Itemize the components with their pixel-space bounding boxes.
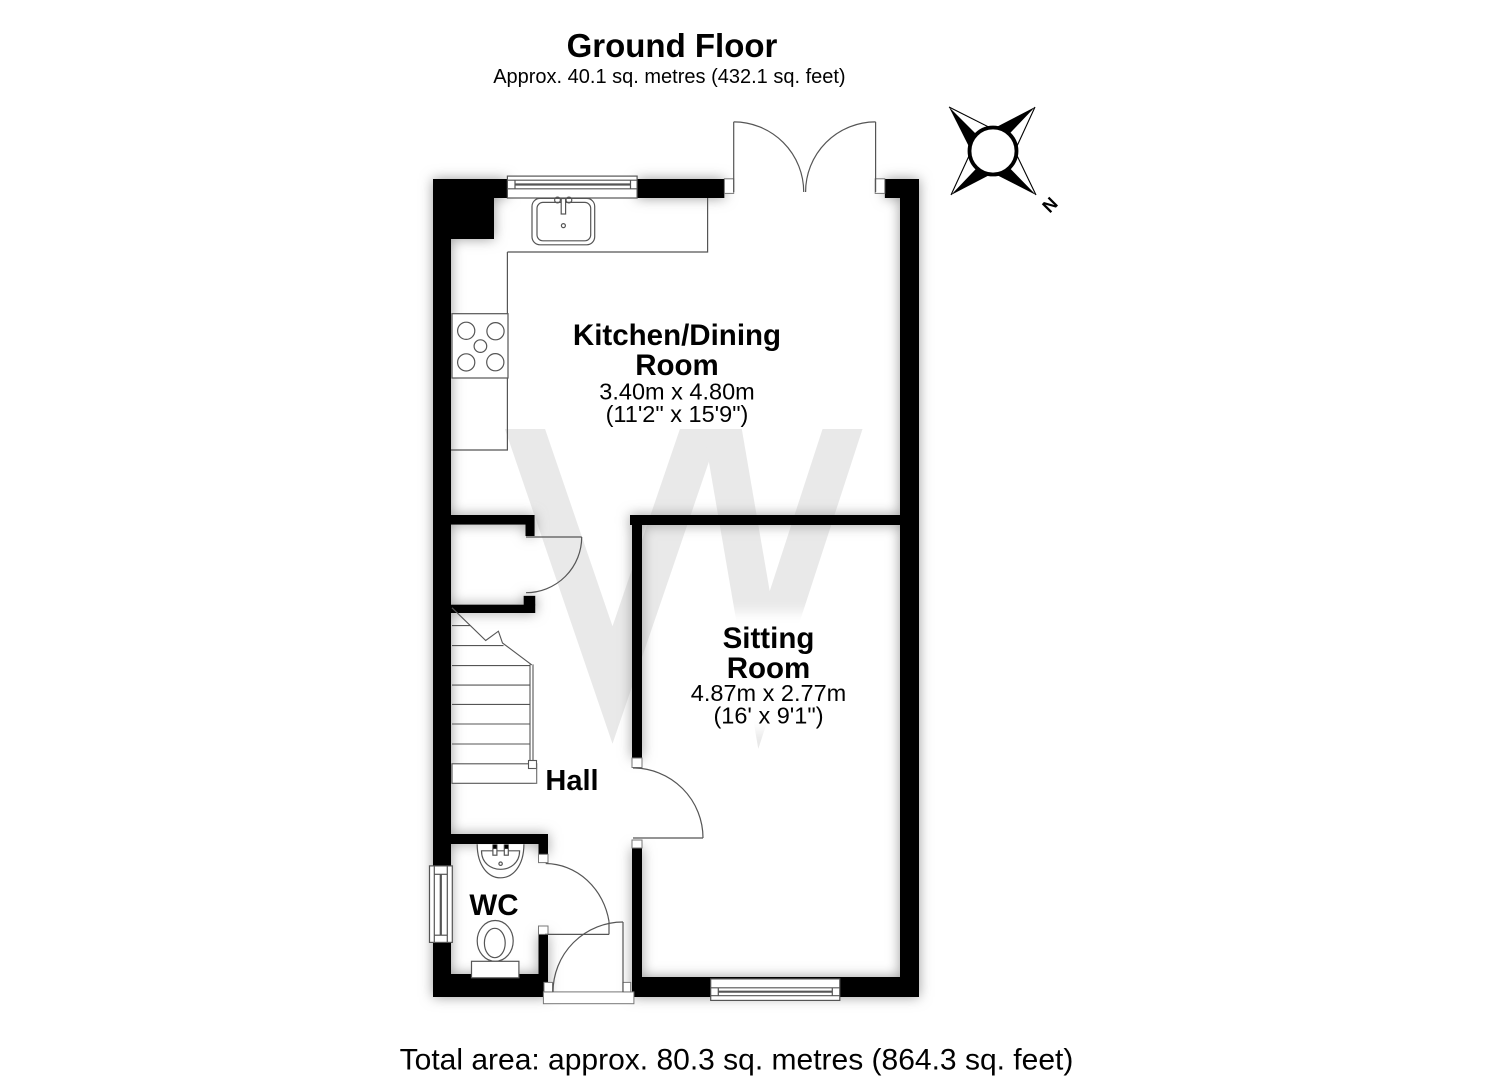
svg-text:Kitchen/Dining: Kitchen/Dining xyxy=(573,319,781,352)
svg-text:(16' x 9'1"): (16' x 9'1") xyxy=(713,703,823,729)
svg-text:Hall: Hall xyxy=(545,765,598,797)
svg-text:Ground Floor: Ground Floor xyxy=(567,27,778,64)
svg-text:(11'2" x 15'9"): (11'2" x 15'9") xyxy=(606,401,749,427)
svg-text:Room: Room xyxy=(635,349,719,382)
svg-text:WC: WC xyxy=(469,889,518,922)
svg-text:Sitting: Sitting xyxy=(723,622,815,655)
svg-text:Total area: approx. 80.3 sq. m: Total area: approx. 80.3 sq. metres (864… xyxy=(400,1044,1074,1077)
svg-text:Approx. 40.1 sq. metres (432.1: Approx. 40.1 sq. metres (432.1 sq. feet) xyxy=(493,66,845,88)
